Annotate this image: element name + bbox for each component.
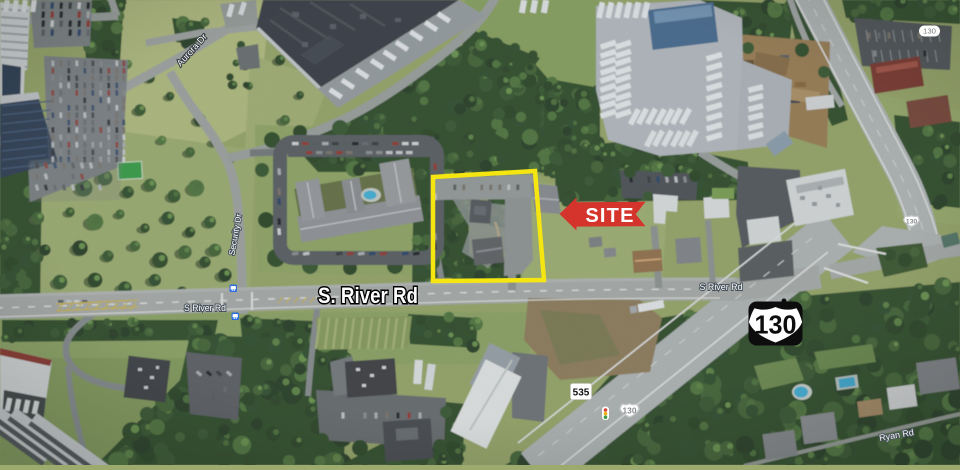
svg-text:130: 130 (755, 310, 797, 340)
svg-text:S River Rd: S River Rd (700, 282, 743, 293)
svg-text:S. River Rd: S. River Rd (318, 283, 418, 308)
svg-text:S River Rd: S River Rd (184, 303, 226, 314)
svg-text:535: 535 (573, 388, 590, 399)
svg-text:130: 130 (923, 29, 936, 36)
svg-text:130: 130 (906, 218, 918, 225)
svg-text:130: 130 (623, 407, 638, 416)
svg-text:SITE: SITE (585, 205, 634, 227)
